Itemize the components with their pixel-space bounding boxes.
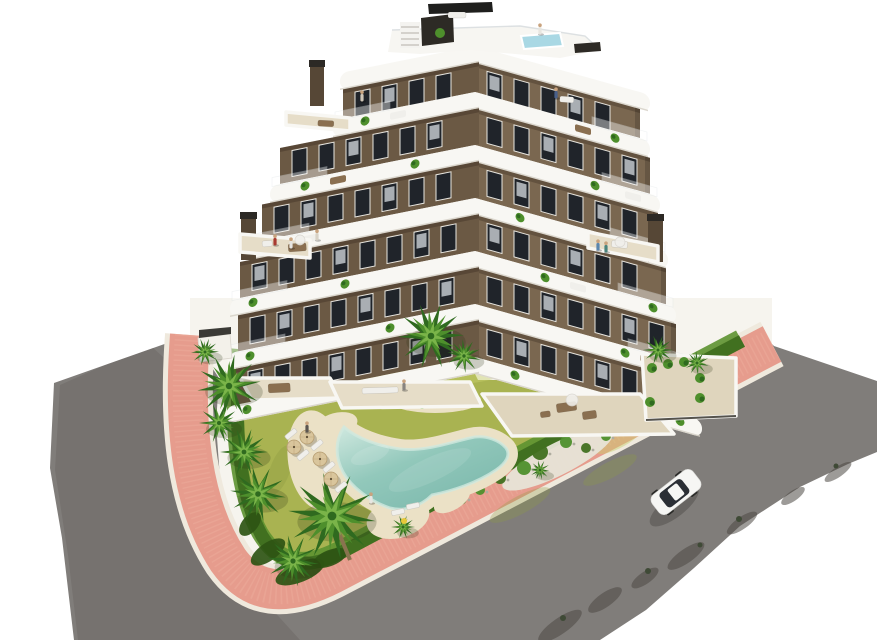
window <box>436 172 451 201</box>
person-head <box>596 239 600 243</box>
window <box>568 352 583 382</box>
furniture-set <box>448 12 466 18</box>
roadside-bush <box>834 464 839 469</box>
person-body <box>554 91 557 99</box>
planter <box>700 377 705 382</box>
pebble <box>592 449 595 452</box>
shrub <box>532 444 548 460</box>
curtain <box>430 124 440 140</box>
window <box>541 185 556 215</box>
pebble <box>507 479 510 482</box>
curtain <box>490 75 500 92</box>
window <box>304 304 319 333</box>
render-canvas <box>0 0 877 640</box>
rooftop-stairs <box>400 22 420 48</box>
palm-center <box>539 469 542 472</box>
window <box>541 238 556 268</box>
curtain <box>544 295 554 312</box>
window <box>514 231 529 261</box>
curtain <box>517 182 527 199</box>
window <box>568 299 583 329</box>
person-body <box>289 241 292 249</box>
window <box>514 284 529 314</box>
planter <box>700 397 705 402</box>
shrub <box>517 461 531 475</box>
person-head <box>604 241 608 245</box>
palm-center <box>402 526 405 529</box>
curtain <box>304 202 314 218</box>
pebble <box>573 443 576 446</box>
curtain <box>490 227 500 244</box>
window <box>514 125 529 155</box>
pebble <box>549 453 552 456</box>
curtain <box>332 356 342 372</box>
window <box>441 224 456 253</box>
curtain <box>544 136 554 153</box>
pebble <box>486 491 489 494</box>
chimney-cap <box>309 60 325 67</box>
umbrella-pole <box>330 478 332 480</box>
curtain <box>385 186 395 202</box>
curtain <box>442 281 452 297</box>
palm-center <box>657 349 660 352</box>
person-head <box>369 492 373 496</box>
window <box>360 240 375 269</box>
planter <box>652 367 657 372</box>
curtain <box>417 233 427 249</box>
window <box>487 329 502 359</box>
terrace-annex <box>642 354 736 420</box>
person-head <box>360 90 364 94</box>
chimney-cap <box>240 212 257 219</box>
window <box>385 288 400 317</box>
furniture-set <box>318 120 334 127</box>
person-head <box>289 237 293 241</box>
window <box>568 140 583 170</box>
curtain <box>571 250 581 267</box>
person-body <box>360 94 363 102</box>
window <box>355 188 370 217</box>
window <box>331 299 346 328</box>
window <box>409 177 424 206</box>
person-head <box>402 379 406 383</box>
pool-float <box>401 518 407 524</box>
palm-center <box>242 450 247 455</box>
window <box>487 276 502 306</box>
curtain <box>598 204 608 221</box>
pebble <box>612 437 615 440</box>
scene-svg <box>0 0 877 640</box>
person-body <box>369 496 372 504</box>
person-head <box>554 87 558 91</box>
chimney-cap <box>647 214 664 221</box>
curtain <box>336 249 346 265</box>
palm-center <box>428 333 435 340</box>
window <box>568 193 583 223</box>
furniture-set <box>582 410 597 420</box>
roadside-bush <box>560 615 566 621</box>
roadside-bush <box>645 568 651 574</box>
palm-center <box>696 362 699 365</box>
person-body <box>402 383 405 391</box>
person-head <box>315 229 319 233</box>
window <box>595 254 610 284</box>
palm-center <box>290 558 295 563</box>
curtain <box>361 297 371 313</box>
window <box>487 117 502 147</box>
furniture-set <box>262 240 272 247</box>
palm-center <box>226 383 232 389</box>
shrub <box>560 436 572 448</box>
furniture-set <box>560 96 574 103</box>
window <box>400 126 415 155</box>
rooftop <box>388 2 601 58</box>
planter <box>668 363 673 368</box>
parasol <box>295 235 305 245</box>
pebble <box>468 499 471 502</box>
window <box>387 235 402 264</box>
person-body <box>305 425 308 433</box>
furniture-set <box>362 387 398 394</box>
curtain <box>280 313 290 329</box>
palm-center <box>217 421 221 425</box>
furniture-set <box>268 383 290 393</box>
window <box>373 131 388 160</box>
shrub <box>581 443 591 453</box>
window <box>595 307 610 337</box>
person-body <box>273 238 276 246</box>
window <box>383 341 398 370</box>
palm-center <box>462 354 465 357</box>
building-left-wing <box>226 45 481 424</box>
roadside-bush <box>736 516 742 522</box>
umbrella-pole <box>319 458 321 460</box>
palm-center <box>255 491 261 497</box>
person-body <box>315 233 318 241</box>
palm-center <box>328 512 337 521</box>
planter <box>684 361 689 366</box>
window <box>328 193 343 222</box>
umbrella-pole <box>293 446 295 448</box>
curtain <box>625 318 635 335</box>
person-head <box>273 234 277 238</box>
furniture-set <box>540 411 551 418</box>
rooftop-plant <box>435 28 445 38</box>
parasol <box>566 394 578 406</box>
window <box>412 283 427 312</box>
window <box>541 344 556 374</box>
umbrella-pole <box>306 436 308 438</box>
curtain <box>625 159 635 176</box>
curtain <box>255 265 265 281</box>
parasol <box>615 237 625 247</box>
person-body <box>538 27 541 35</box>
person-head <box>305 421 309 425</box>
person-head <box>538 23 542 27</box>
window <box>487 170 502 200</box>
curtain <box>517 341 527 358</box>
curtain <box>385 87 395 103</box>
curtain <box>349 140 359 156</box>
roadside-bush <box>698 543 703 548</box>
curtain <box>598 363 608 380</box>
palm-center <box>204 351 207 354</box>
person-body <box>596 243 599 251</box>
terrace-ground-mid <box>330 382 482 408</box>
person-body <box>604 245 607 253</box>
window <box>356 347 371 376</box>
planter <box>650 401 655 406</box>
